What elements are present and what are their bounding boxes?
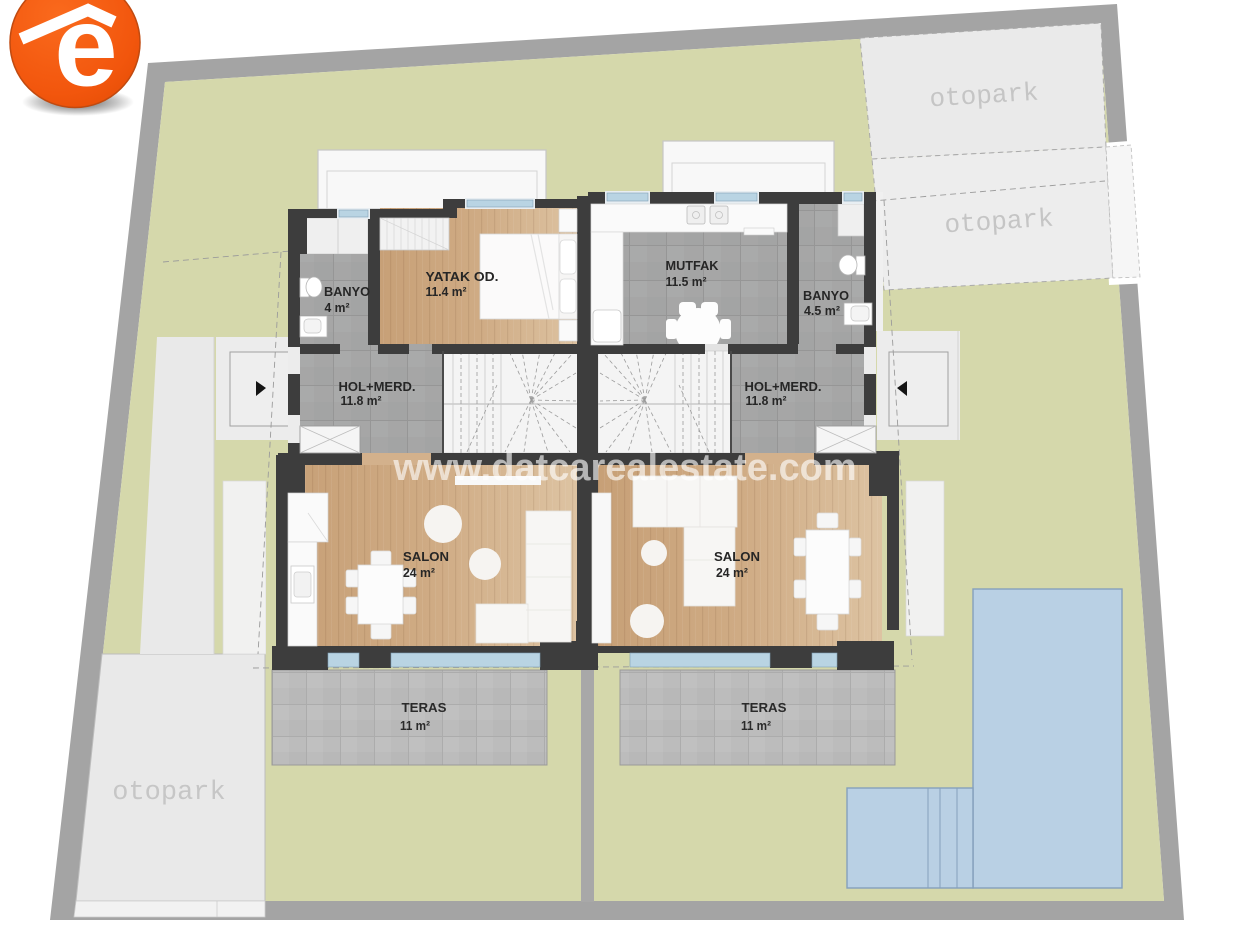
svg-text:YATAK OD.: YATAK OD. [426,269,499,284]
svg-text:HOL+MERD.: HOL+MERD. [339,379,416,394]
svg-text:otopark: otopark [112,778,225,808]
svg-text:www.datcarealestate.com: www.datcarealestate.com [392,447,856,489]
svg-text:11.8 m²: 11.8 m² [341,394,382,408]
svg-text:SALON: SALON [403,549,449,564]
svg-text:11.4 m²: 11.4 m² [426,285,467,299]
svg-text:SALON: SALON [714,549,760,564]
svg-text:TERAS: TERAS [742,700,787,715]
svg-text:11.8 m²: 11.8 m² [746,394,787,408]
svg-text:HOL+MERD.: HOL+MERD. [745,379,822,394]
svg-text:BANYO: BANYO [803,288,849,303]
svg-text:4 m²: 4 m² [325,301,350,315]
svg-text:11 m²: 11 m² [741,719,771,733]
svg-text:TERAS: TERAS [402,700,447,715]
svg-text:24 m²: 24 m² [403,566,435,580]
svg-text:4.5 m²: 4.5 m² [804,304,840,318]
svg-text:MUTFAK: MUTFAK [666,258,720,273]
svg-text:24 m²: 24 m² [716,566,748,580]
svg-text:BANYO: BANYO [324,284,370,299]
svg-text:11 m²: 11 m² [400,719,430,733]
svg-text:11.5 m²: 11.5 m² [666,275,707,289]
